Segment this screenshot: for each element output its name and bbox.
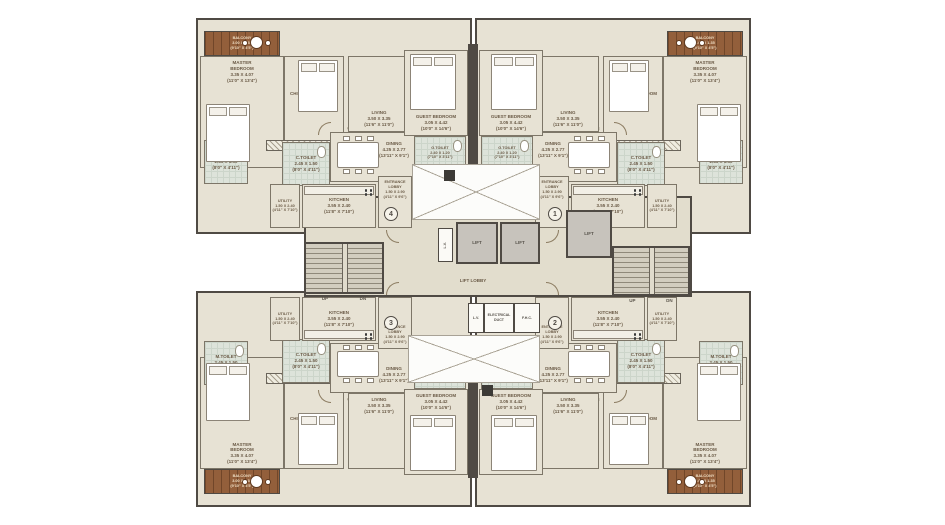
room-label: GUEST BEDROOM 3.05 X 4.42 (10'0" X 14'6"… <box>416 393 456 411</box>
balcony-table-icon <box>676 36 705 49</box>
lift-label: LIFT <box>472 240 482 246</box>
room-label: C.TOILET 2.45 X 1.50 (8'0" X 4'11") <box>627 155 654 173</box>
lift-1: LIFT <box>456 222 498 264</box>
room-label: DINING 4.25 X 2.77 (13'11" X 9'1") <box>376 366 412 384</box>
room-label: DINING 4.25 X 2.77 (13'11" X 9'1") <box>535 141 571 159</box>
room-label: G.TOILET 2.40 X 1.20 (7'10" X 3'11") <box>427 146 452 161</box>
duct-shaft <box>444 170 455 181</box>
room-label: LIVING 3.50 X 3.35 (11'6" X 11'0") <box>553 110 582 128</box>
room-label: KITCHEN 3.55 X 2.40 (11'8" X 7'10") <box>593 310 623 328</box>
room-label: LIVING 3.50 X 3.35 (11'6" X 11'0") <box>553 397 582 415</box>
room-label: ENTRANCE LOBBY 1.50 X 2.90 (4'11" X 9'6"… <box>384 180 407 200</box>
lift-lobby-label: LIFT LOBBY <box>460 278 487 284</box>
lift-3: LIFT <box>566 210 612 258</box>
balcony-table-icon <box>242 475 271 488</box>
stair-direction-right: UP DN <box>614 298 688 308</box>
staircase-right <box>612 246 690 296</box>
lift-2: LIFT <box>500 222 540 264</box>
lv-label: L.V. <box>473 316 479 321</box>
dn-label: DN <box>666 298 673 308</box>
room-label: C.TOILET 2.45 X 1.50 (8'0" X 4'11") <box>292 352 319 370</box>
room-label: GUEST BEDROOM 3.05 X 4.42 (10'0" X 14'6"… <box>416 114 456 132</box>
bed-icon <box>410 415 456 471</box>
kitchen-counter-icon <box>304 186 374 195</box>
room-label: UTILITY 1.50 X 2.40 (4'11" X 7'10") <box>272 199 297 214</box>
room-label: MASTER BEDROOM 3.35 X 4.07 (11'0" X 13'4… <box>227 442 257 465</box>
room-label: DINING 4.25 X 2.77 (13'11" X 9'1") <box>535 366 571 384</box>
room-label: LIVING 3.50 X 3.35 (11'6" X 11'0") <box>364 110 393 128</box>
room-label: C.TOILET 2.45 X 1.50 (8'0" X 4'11") <box>292 155 319 173</box>
dining-table-icon <box>568 345 610 383</box>
bed-icon <box>206 104 250 162</box>
up-label: UP <box>629 298 635 308</box>
electrical-duct-room: ELECTRICAL DUCT <box>484 303 514 333</box>
dining-table-icon <box>568 136 610 174</box>
bed-icon <box>206 363 250 421</box>
floor-plan: BALCONY 3.00 X 1.35 (9'10" X 4'5") MASTE… <box>0 0 945 525</box>
room-label: G.TOILET 2.40 X 1.20 (7'10" X 3'11") <box>494 146 519 161</box>
balcony-table-icon <box>242 36 271 49</box>
stair-direction-left: UP DN <box>306 296 382 306</box>
room-label: C.TOILET 2.45 X 1.50 (8'0" X 4'11") <box>627 352 654 370</box>
bed-icon <box>697 363 741 421</box>
living-bottom-right: LIVING 3.50 X 3.35 (11'6" X 11'0") <box>537 393 599 469</box>
entrance-lobby-top-left: ENTRANCE LOBBY 1.50 X 2.90 (4'11" X 9'6"… <box>378 176 412 228</box>
flat-number-badge: 3 <box>384 316 398 330</box>
kitchen-counter-icon <box>573 330 643 339</box>
duct-void-top <box>412 164 540 220</box>
room-label: UTILITY 1.50 X 2.40 (4'11" X 7'10") <box>649 199 674 214</box>
balcony-table-icon <box>676 475 705 488</box>
living-top-right: LIVING 3.50 X 3.35 (11'6" X 11'0") <box>537 56 599 132</box>
flat-number-badge: 1 <box>548 207 562 221</box>
electrical-duct-label: ELECTRICAL DUCT <box>488 313 511 322</box>
c-toilet-top-right: C.TOILET 2.45 X 1.50 (8'0" X 4'11") <box>617 142 665 186</box>
wall-segment <box>468 44 478 166</box>
room-label: LIVING 3.50 X 3.35 (11'6" X 11'0") <box>364 397 393 415</box>
kitchen-counter-icon <box>573 186 643 195</box>
flat-number-badge: 2 <box>548 316 562 330</box>
c-toilet-bottom-left: C.TOILET 2.45 X 1.50 (8'0" X 4'11") <box>282 339 330 383</box>
kitchen-counter-icon <box>304 330 374 339</box>
dining-table-icon <box>337 136 379 174</box>
dn-label: DN <box>360 296 367 306</box>
bed-icon <box>609 413 649 465</box>
room-label: KITCHEN 3.55 X 2.40 (11'8" X 7'10") <box>324 197 354 215</box>
bed-icon <box>298 60 338 112</box>
bed-icon <box>410 54 456 110</box>
c-toilet-bottom-right: C.TOILET 2.45 X 1.50 (8'0" X 4'11") <box>617 339 665 383</box>
lv-label: L.V. <box>443 242 448 248</box>
living-top-left: LIVING 3.50 X 3.35 (11'6" X 11'0") <box>348 56 410 132</box>
lift-label: LIFT <box>584 231 594 237</box>
fhc-label: F.H.C. <box>522 316 532 321</box>
fhc-room: F.H.C. <box>514 303 540 333</box>
lv-room: L.V. <box>468 303 484 333</box>
lift-label: LIFT <box>515 240 525 246</box>
utility-top-left: UTILITY 1.50 X 2.40 (4'11" X 7'10") <box>270 184 300 228</box>
duct-shaft <box>482 385 493 396</box>
room-label: MASTER BEDROOM 3.35 X 4.07 (11'0" X 13'4… <box>227 60 257 83</box>
bed-icon <box>491 415 537 471</box>
room-label: GUEST BEDROOM 3.05 X 4.42 (10'0" X 14'6"… <box>491 393 531 411</box>
lift-lobby: LIFT LOBBY <box>440 276 506 286</box>
lv-shaft-top: L.V. <box>438 228 453 262</box>
room-label: GUEST BEDROOM 3.05 X 4.42 (10'0" X 14'6"… <box>491 114 531 132</box>
bed-icon <box>298 413 338 465</box>
utility-bottom-left: UTILITY 1.50 X 2.40 (4'11" X 7'10") <box>270 297 300 341</box>
room-label: UTILITY 1.50 X 2.40 (4'11" X 7'10") <box>649 312 674 327</box>
bed-icon <box>697 104 741 162</box>
room-label: ENTRANCE LOBBY 1.50 X 2.90 (4'11" X 9'6"… <box>541 180 564 200</box>
staircase-left <box>304 242 384 294</box>
room-label: MASTER BEDROOM 3.35 X 4.07 (11'0" X 13'4… <box>690 442 720 465</box>
duct-void-bottom <box>408 335 540 383</box>
c-toilet-top-left: C.TOILET 2.45 X 1.50 (8'0" X 4'11") <box>282 142 330 186</box>
bed-icon <box>609 60 649 112</box>
room-label: UTILITY 1.50 X 2.40 (4'11" X 7'10") <box>272 312 297 327</box>
bed-icon <box>491 54 537 110</box>
up-label: UP <box>322 296 328 306</box>
utility-top-right: UTILITY 1.50 X 2.40 (4'11" X 7'10") <box>647 184 677 228</box>
flat-number-badge: 4 <box>384 207 398 221</box>
room-label: KITCHEN 3.55 X 2.40 (11'8" X 7'10") <box>324 310 354 328</box>
dining-table-icon <box>337 345 379 383</box>
living-bottom-left: LIVING 3.50 X 3.35 (11'6" X 11'0") <box>348 393 410 469</box>
room-label: DINING 4.25 X 2.77 (13'11" X 9'1") <box>376 141 412 159</box>
room-label: MASTER BEDROOM 3.35 X 4.07 (11'0" X 13'4… <box>690 60 720 83</box>
